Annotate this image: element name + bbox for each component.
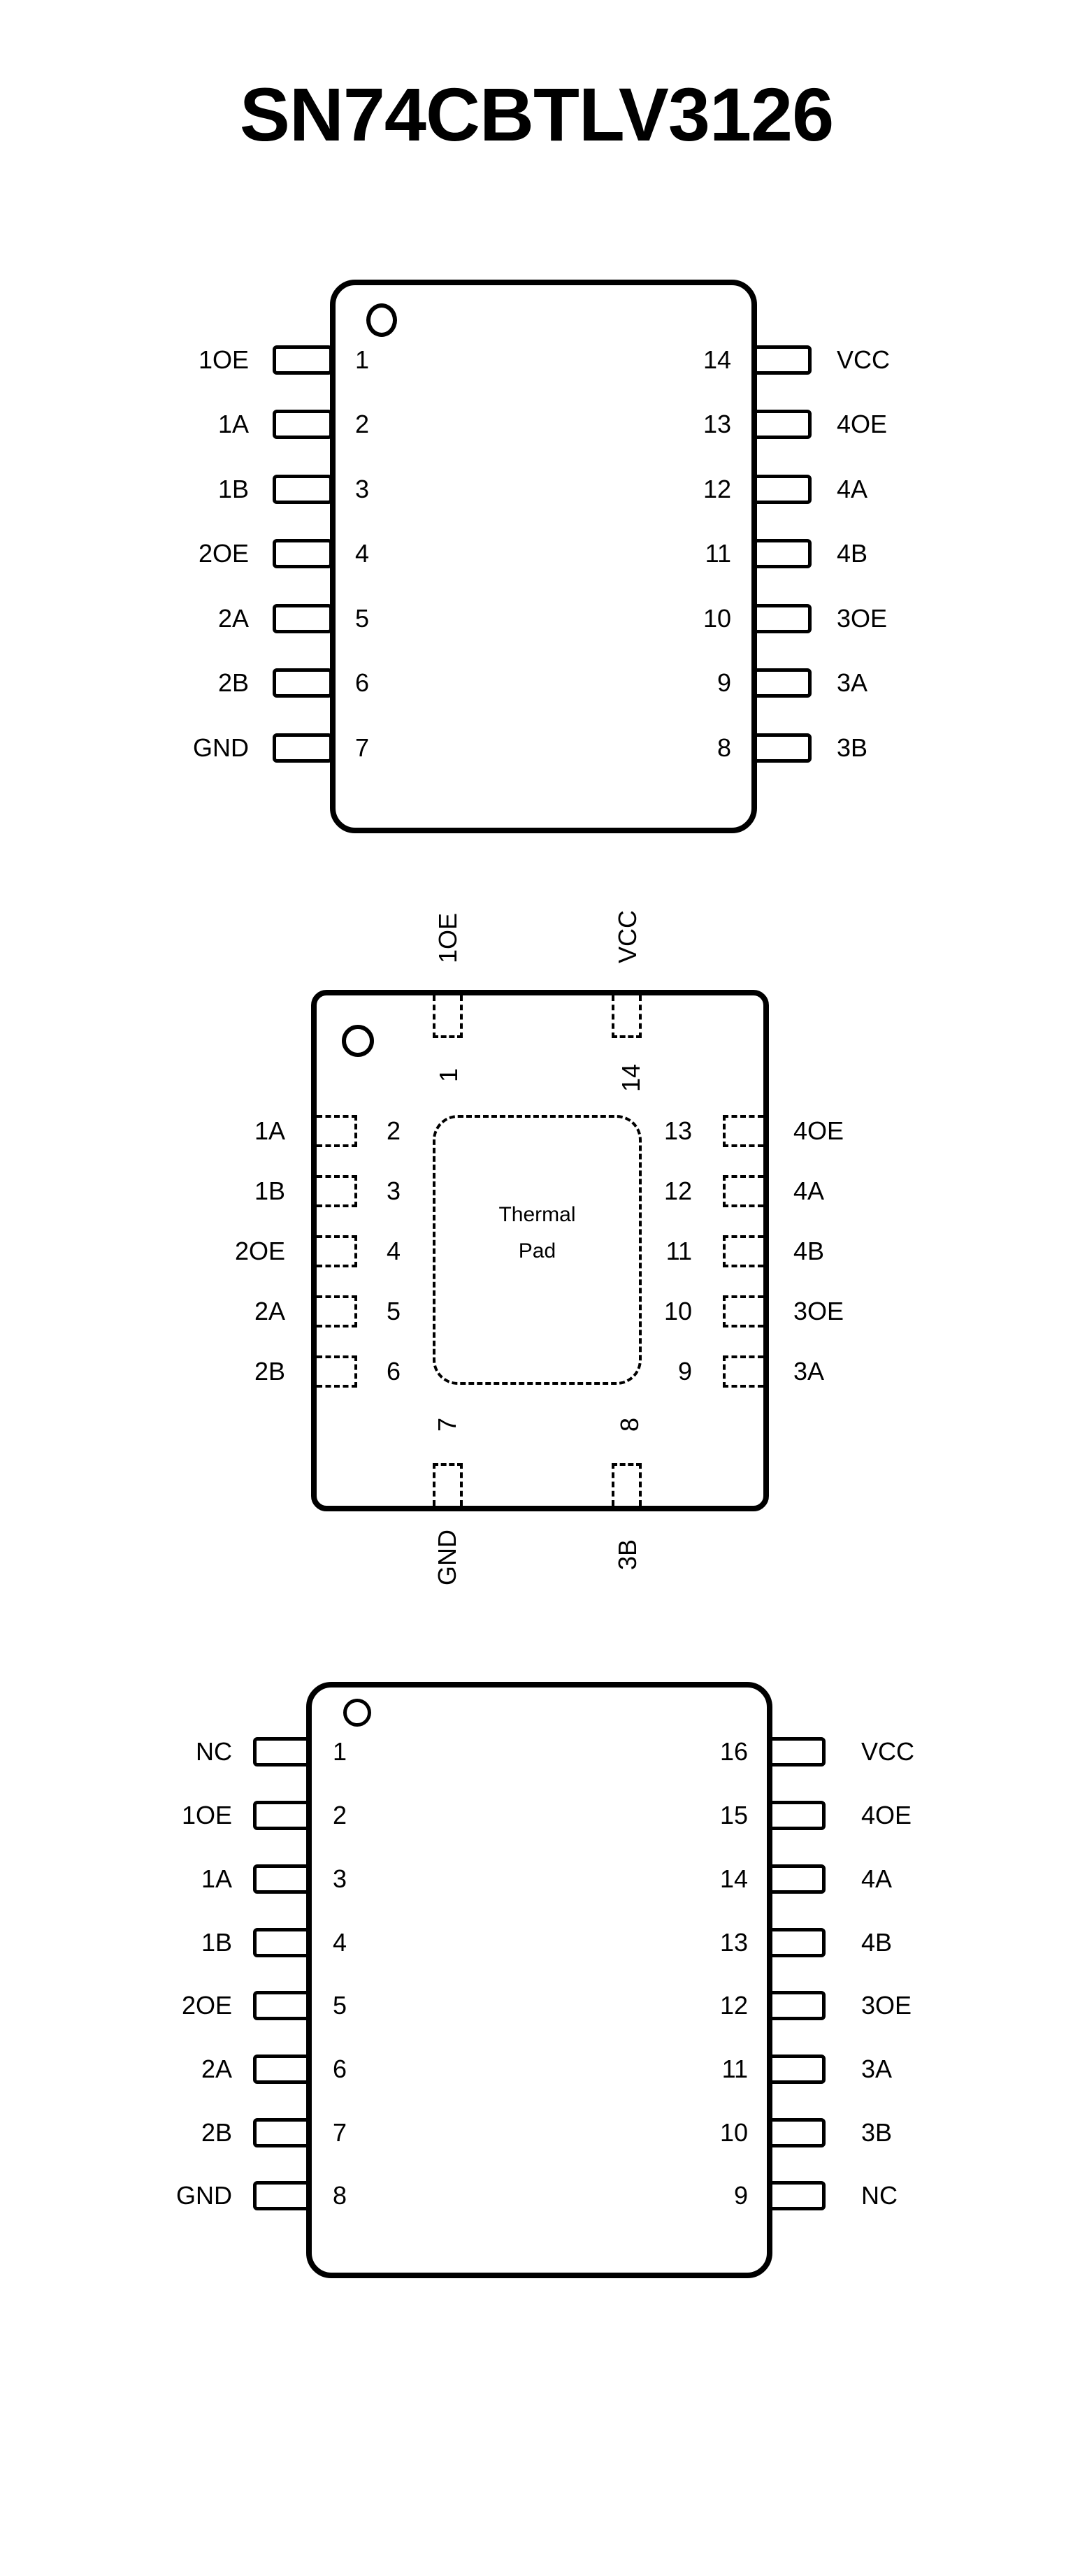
pin-box xyxy=(753,345,812,375)
pin-number: 10 xyxy=(657,606,731,631)
pin-box xyxy=(753,604,812,633)
pin-box xyxy=(433,1463,463,1506)
pin-number: 14 xyxy=(657,347,731,373)
pin-number: 2 xyxy=(355,412,369,437)
pin-number: 2 xyxy=(387,1118,401,1144)
pin-label: 3A xyxy=(861,2057,892,2082)
pin-label: NC xyxy=(861,2183,898,2208)
pin-box xyxy=(753,733,812,763)
pin-number: 5 xyxy=(355,606,369,631)
pin-number: 8 xyxy=(333,2183,347,2208)
pin-box xyxy=(273,475,333,504)
pin-number: 7 xyxy=(355,735,369,761)
pin-number: 7 xyxy=(333,2120,347,2145)
pin-label: 1A xyxy=(88,412,249,437)
pin-number: 8 xyxy=(657,735,731,761)
pin-box xyxy=(768,1864,826,1894)
part-title: SN74CBTLV3126 xyxy=(0,77,1073,152)
pin-label: 3B xyxy=(861,2120,892,2145)
pin-box xyxy=(253,2055,310,2084)
pin1-indicator-icon xyxy=(366,303,397,337)
pin-number: 4 xyxy=(333,1930,347,1955)
pin-label: 2A xyxy=(124,1299,285,1324)
pin-label: 4OE xyxy=(861,1803,912,1828)
pin-number: 9 xyxy=(674,2183,748,2208)
pin-label: 2A xyxy=(88,606,249,631)
pin-number: 11 xyxy=(657,541,731,566)
pin-label: 3A xyxy=(837,670,867,696)
pin-box xyxy=(753,410,812,439)
pin-box xyxy=(273,345,333,375)
pin-number: 15 xyxy=(674,1803,748,1828)
pin-box xyxy=(768,2181,826,2210)
pin-box xyxy=(253,1991,310,2020)
pin-box xyxy=(768,2055,826,2084)
pin-box xyxy=(273,668,333,698)
pin-number: 3 xyxy=(333,1866,347,1892)
pin-label: 1A xyxy=(124,1118,285,1144)
thermal-pad-label-line2: Pad xyxy=(433,1233,642,1269)
pin-box xyxy=(753,668,812,698)
pin-box xyxy=(317,1295,357,1327)
pin-number: 6 xyxy=(355,670,369,696)
thermal-pad-label: Thermal Pad xyxy=(433,1197,642,1269)
pin-box xyxy=(253,1801,310,1830)
pin-number: 4 xyxy=(355,541,369,566)
pin-box xyxy=(753,475,812,504)
pin-box xyxy=(253,1928,310,1957)
pin-label: GND xyxy=(435,1530,460,1585)
pin-box xyxy=(768,1737,826,1766)
pin-label: 4OE xyxy=(837,412,887,437)
pin-label: 1OE xyxy=(435,913,461,963)
pin-box xyxy=(273,539,333,568)
pin-box xyxy=(723,1355,763,1388)
pin-box xyxy=(273,733,333,763)
thermal-pad-label-line1: Thermal xyxy=(433,1197,642,1233)
pin-label: 3B xyxy=(615,1539,640,1570)
pin1-indicator-icon xyxy=(342,1025,374,1057)
pin-number: 6 xyxy=(387,1359,401,1384)
pin-number: 1 xyxy=(333,1739,347,1764)
pin-box xyxy=(253,2181,310,2210)
pin-box xyxy=(723,1115,763,1147)
pin-box xyxy=(273,410,333,439)
pin-number: 16 xyxy=(674,1739,748,1764)
pin-label: 4A xyxy=(861,1866,892,1892)
pin-number: 14 xyxy=(674,1866,748,1892)
pin-number: 6 xyxy=(333,2057,347,2082)
pin-box xyxy=(253,1737,310,1766)
pin-box xyxy=(723,1235,763,1267)
pin-label: VCC xyxy=(861,1739,914,1764)
pin-label: 1B xyxy=(71,1930,232,1955)
pin-label: 1B xyxy=(124,1179,285,1204)
pin-label: 2A xyxy=(71,2057,232,2082)
pin-number: 3 xyxy=(355,477,369,502)
pin-box xyxy=(768,1801,826,1830)
pin-box xyxy=(768,1991,826,2020)
pin-label: VCC xyxy=(615,910,640,963)
pin-number: 13 xyxy=(657,412,731,437)
pin-label: 1OE xyxy=(71,1803,232,1828)
pin-number: 7 xyxy=(435,1418,460,1432)
pin-number: 2 xyxy=(333,1803,347,1828)
pin-number: 10 xyxy=(674,2120,748,2145)
pin-label: 2B xyxy=(71,2120,232,2145)
pin-box xyxy=(612,995,642,1038)
pin-box xyxy=(253,2118,310,2147)
pin-box xyxy=(433,995,463,1038)
pin-label: 1OE xyxy=(88,347,249,373)
pin-number: 3 xyxy=(387,1179,401,1204)
pin-label: 4B xyxy=(793,1239,824,1264)
pin-label: 2OE xyxy=(88,541,249,566)
pin-label: 3OE xyxy=(837,606,887,631)
pin-box xyxy=(753,539,812,568)
pin-box xyxy=(768,2118,826,2147)
pin-label: GND xyxy=(71,2183,232,2208)
pin-label: 4A xyxy=(793,1179,824,1204)
pin-label: 4A xyxy=(837,477,867,502)
pin-label: 1B xyxy=(88,477,249,502)
pin-number: 1 xyxy=(436,1068,461,1082)
pin-label: NC xyxy=(71,1739,232,1764)
pin-box xyxy=(723,1175,763,1207)
pin-box xyxy=(768,1928,826,1957)
pin-label: 2B xyxy=(88,670,249,696)
pin-number: 14 xyxy=(619,1064,644,1092)
pin-label: 4B xyxy=(861,1930,892,1955)
pin-box xyxy=(723,1295,763,1327)
pin-number: 12 xyxy=(674,1993,748,2018)
pin-label: 3OE xyxy=(793,1299,844,1324)
pin-number: 13 xyxy=(674,1930,748,1955)
pin-label: 2OE xyxy=(71,1993,232,2018)
pin-label: 4OE xyxy=(793,1118,844,1144)
pinout-page: SN74CBTLV3126 1OE 1A 1B 2OE 2A 2B GND 1 … xyxy=(0,0,1073,2576)
pin-label: 2B xyxy=(124,1359,285,1384)
pin-number: 9 xyxy=(657,670,731,696)
pin-label: 3A xyxy=(793,1359,824,1384)
pin-label: 4B xyxy=(837,541,867,566)
pin-number: 12 xyxy=(657,477,731,502)
pin-box xyxy=(612,1463,642,1506)
pin-label: 1A xyxy=(71,1866,232,1892)
pin-label: 3B xyxy=(837,735,867,761)
pin-box xyxy=(253,1864,310,1894)
pin-number: 11 xyxy=(674,2057,748,2082)
pin-label: 2OE xyxy=(124,1239,285,1264)
pin-number: 4 xyxy=(387,1239,401,1264)
pin-number: 5 xyxy=(387,1299,401,1324)
pin-box xyxy=(317,1235,357,1267)
pin-label: VCC xyxy=(837,347,890,373)
pin-box xyxy=(317,1355,357,1388)
pin-number: 5 xyxy=(333,1993,347,2018)
pin1-indicator-icon xyxy=(343,1699,371,1727)
pin-box xyxy=(317,1175,357,1207)
pin-label: 3OE xyxy=(861,1993,912,2018)
pin-number: 1 xyxy=(355,347,369,373)
pin-box xyxy=(317,1115,357,1147)
pin-number: 8 xyxy=(617,1418,642,1432)
pin-box xyxy=(273,604,333,633)
pin-label: GND xyxy=(88,735,249,761)
